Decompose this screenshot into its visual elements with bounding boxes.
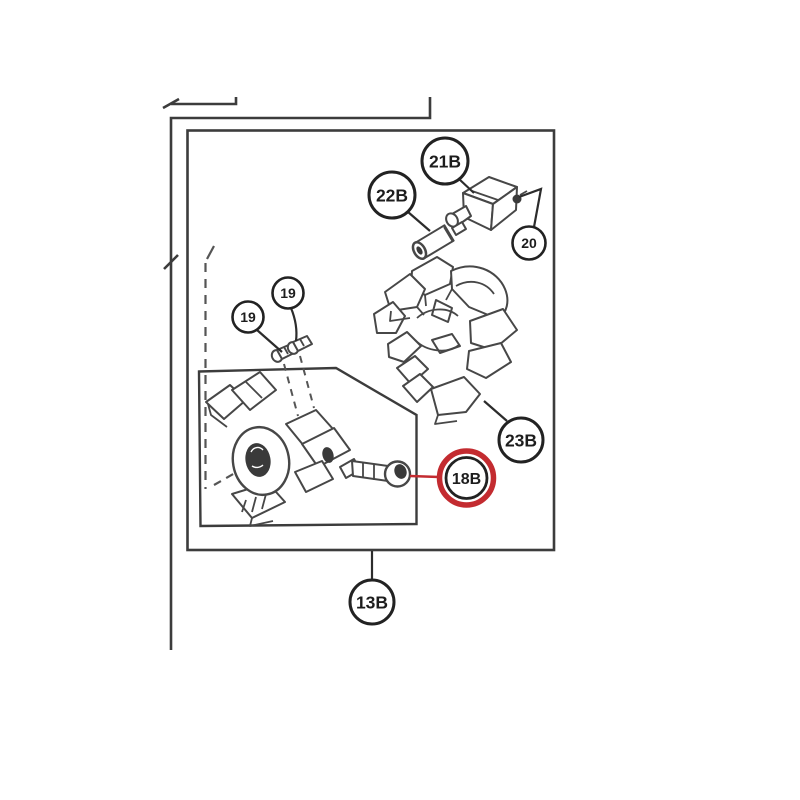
callout-20: 20 [513, 227, 546, 260]
callout-18b-label: 18B [452, 471, 481, 488]
callout-13b: 13B [350, 580, 394, 624]
callout-23b-label: 23B [505, 431, 537, 451]
callout-21b: 21B [422, 138, 468, 184]
leader-22b [408, 212, 430, 231]
callout-20-label: 20 [521, 235, 537, 251]
callout-22b: 22B [369, 172, 415, 218]
leader-lines [257, 179, 541, 580]
parts-diagram-image: 21B 22B 20 19 19 23B 18B 13B [0, 0, 800, 800]
adjacent-frame-bracket [163, 97, 236, 108]
rotor-assembly-13b [206, 372, 350, 526]
leader-19a [257, 330, 282, 352]
callout-19a-label: 19 [240, 309, 256, 325]
callout-19b-label: 19 [280, 285, 296, 301]
callout-13b-label: 13B [356, 593, 388, 613]
bolt-part-22b [410, 222, 466, 261]
leader-23b [484, 401, 507, 421]
callout-19a: 19 [233, 302, 264, 333]
callout-21b-label: 21B [429, 152, 461, 172]
screw-part-18b [340, 459, 410, 487]
leader-20 [519, 189, 541, 227]
leader-18b-highlight [410, 476, 439, 477]
callout-18b-highlighted: 18B [440, 451, 494, 505]
diagram-canvas: 21B 22B 20 19 19 23B 18B 13B [0, 0, 800, 800]
callout-23b: 23B [499, 418, 543, 462]
leader-19b [291, 308, 296, 341]
callout-19b: 19 [273, 278, 304, 309]
rotor-part-23b [374, 257, 517, 424]
solenoid-part-21b [444, 177, 517, 230]
screw-parts-19 [270, 336, 312, 364]
callout-22b-label: 22B [376, 186, 408, 206]
